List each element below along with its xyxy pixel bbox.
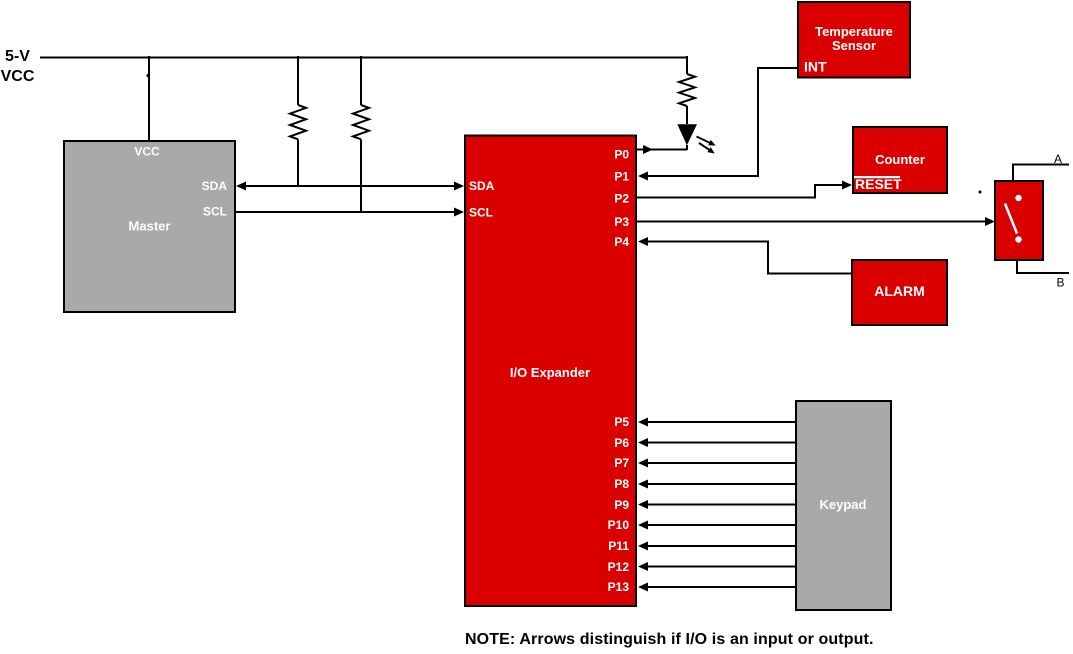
svg-text:P11: P11 (608, 539, 629, 553)
svg-text:P1: P1 (614, 170, 629, 184)
svg-text:P12: P12 (608, 560, 630, 574)
svg-text:SDA: SDA (469, 179, 495, 193)
svg-text:ALARM: ALARM (874, 283, 925, 299)
svg-text:RESET: RESET (855, 176, 902, 192)
svg-text:P7: P7 (614, 456, 629, 470)
svg-text:Keypad: Keypad (820, 497, 867, 512)
svg-text:P13: P13 (608, 580, 630, 594)
svg-text:INT: INT (804, 59, 827, 75)
svg-text:P6: P6 (614, 436, 629, 450)
svg-text:VCC: VCC (1, 68, 35, 85)
svg-text:Counter: Counter (875, 152, 925, 167)
svg-text:VCC: VCC (134, 145, 160, 159)
svg-text:SCL: SCL (469, 206, 493, 220)
svg-text:SCL: SCL (203, 205, 227, 219)
svg-text:P9: P9 (614, 498, 629, 512)
svg-text:B: B (1057, 276, 1065, 290)
svg-text:P2: P2 (614, 192, 629, 206)
svg-text:SDA: SDA (202, 179, 228, 193)
svg-text:NOTE: Arrows distinguish if I/: NOTE: Arrows distinguish if I/O is an in… (465, 631, 874, 648)
svg-text:Master: Master (129, 219, 171, 234)
svg-text:P8: P8 (614, 477, 629, 491)
svg-text:P4: P4 (614, 235, 629, 249)
svg-text:5-V: 5-V (5, 48, 30, 65)
svg-text:Sensor: Sensor (832, 38, 876, 53)
svg-text:P10: P10 (608, 518, 630, 532)
svg-text:Temperature: Temperature (815, 24, 893, 39)
svg-text:P3: P3 (614, 215, 629, 229)
svg-text:P0: P0 (614, 148, 629, 162)
svg-text:I/O Expander: I/O Expander (510, 365, 590, 380)
svg-text:P5: P5 (614, 415, 629, 429)
svg-text:A: A (1054, 152, 1062, 166)
